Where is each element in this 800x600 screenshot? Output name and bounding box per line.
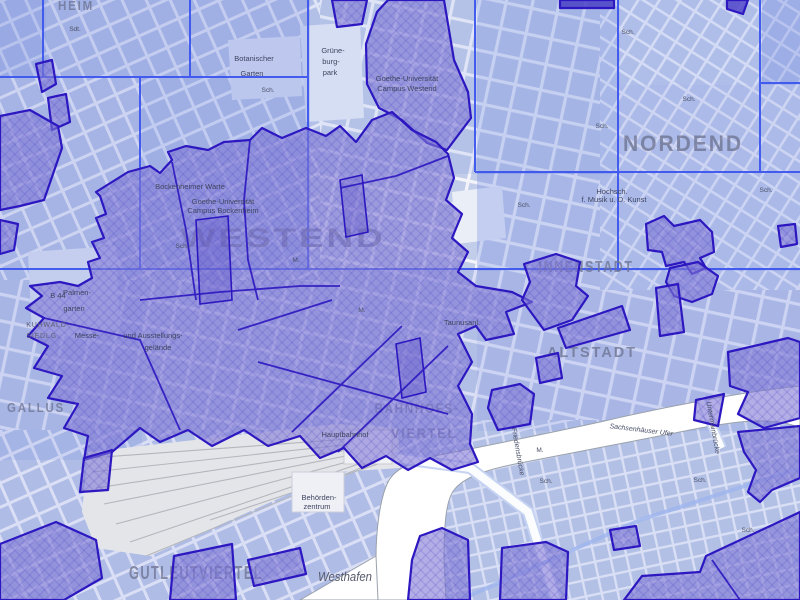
overlay-region-east-mid[interactable]	[728, 338, 800, 428]
marker-sch: Sch.	[621, 29, 634, 36]
overlay-region-top-strip[interactable]	[560, 0, 614, 8]
place-label-behoerdenzentrum: zentrum	[303, 502, 330, 511]
district-label-heim: HEIM	[58, 0, 94, 13]
marker-sch: Sch.	[759, 187, 772, 194]
place-label-grueneburgpark: burg-	[322, 57, 340, 66]
marker-sch: Sch.	[517, 202, 530, 209]
marker-sch: Sch.	[261, 87, 274, 94]
overlay-region-east-small[interactable]	[778, 224, 797, 247]
place-label-messe: und Ausstellungs-	[123, 331, 183, 340]
overlay-region-south-b[interactable]	[500, 542, 568, 600]
marker-m: M.	[536, 447, 543, 454]
marker-m: M.	[292, 257, 299, 264]
place-label-botanischer-garten: Botanischer	[234, 54, 274, 63]
place-label-westhafen: Westhafen	[318, 569, 372, 584]
marker-sch: Sch.	[595, 123, 608, 130]
overlay-region-nordend-strip[interactable]	[656, 284, 684, 336]
place-label-palmengarten: garten	[63, 304, 84, 313]
place-label-bockenheimer-warte: Bockenheimer Warte	[155, 182, 225, 191]
overlay-subregion[interactable]	[396, 338, 426, 398]
place-label-messe: gelände	[145, 343, 172, 352]
place-label-uni-campus-bockenheim: Goethe-Universität	[192, 197, 255, 206]
marker-sch: Sch.	[175, 243, 188, 250]
marker-sch: Sch.	[539, 478, 552, 485]
place-label-taunusanlage: Taunusanl.	[444, 318, 480, 327]
overlay-region-bv-south[interactable]	[488, 384, 534, 430]
place-label-grueneburgpark: park	[323, 68, 338, 77]
marker-sdt: Sdt.	[69, 26, 81, 33]
marker-sch: Sch.	[741, 527, 754, 534]
place-label-kuhwald-siedlung: KUHWALD-	[26, 322, 69, 329]
marker-sch: Sch.	[693, 477, 706, 484]
district-label-altstadt: ALTSTADT	[547, 344, 637, 361]
place-label-kuhwald-siedlung: SIEDLG.	[26, 333, 59, 340]
map-canvas[interactable]: HEIM WESTEND NORDEND INNENSTADT ALTSTADT…	[0, 0, 800, 600]
overlay-region-innenstadt-c[interactable]	[536, 353, 562, 383]
marker-sch: Sch.	[682, 96, 695, 103]
place-label-behoerdenzentrum: Behörden-	[301, 493, 337, 502]
overlay-region-south-small[interactable]	[610, 526, 640, 550]
marker-m: M.	[358, 307, 365, 314]
road-label-b44: B 44	[50, 291, 65, 300]
district-label-nordend: NORDEND	[623, 131, 743, 156]
map-svg: HEIM WESTEND NORDEND INNENSTADT ALTSTADT…	[0, 0, 800, 600]
overlay-region-top-small[interactable]	[332, 0, 367, 27]
place-label-hauptbahnhof: Hauptbahnhof	[321, 430, 369, 439]
district-label-gallus: GALLUS	[7, 400, 65, 415]
place-label-uni-campus-bockenheim: Campus Bockenheim	[187, 206, 258, 215]
place-label-messe: Messe-	[75, 331, 100, 340]
place-label-botanischer-garten: Garten	[241, 69, 264, 78]
place-label-uni-campus-westend: Goethe-Universität	[376, 74, 439, 83]
place-label-uni-campus-westend: Campus Westend	[377, 84, 436, 93]
place-label-grueneburgpark: Grüne-	[321, 46, 345, 55]
place-label-hochschule-musik: f. Musik u. D. Kunst	[581, 195, 647, 204]
place-label-palmengarten: Palmen-	[63, 288, 91, 297]
